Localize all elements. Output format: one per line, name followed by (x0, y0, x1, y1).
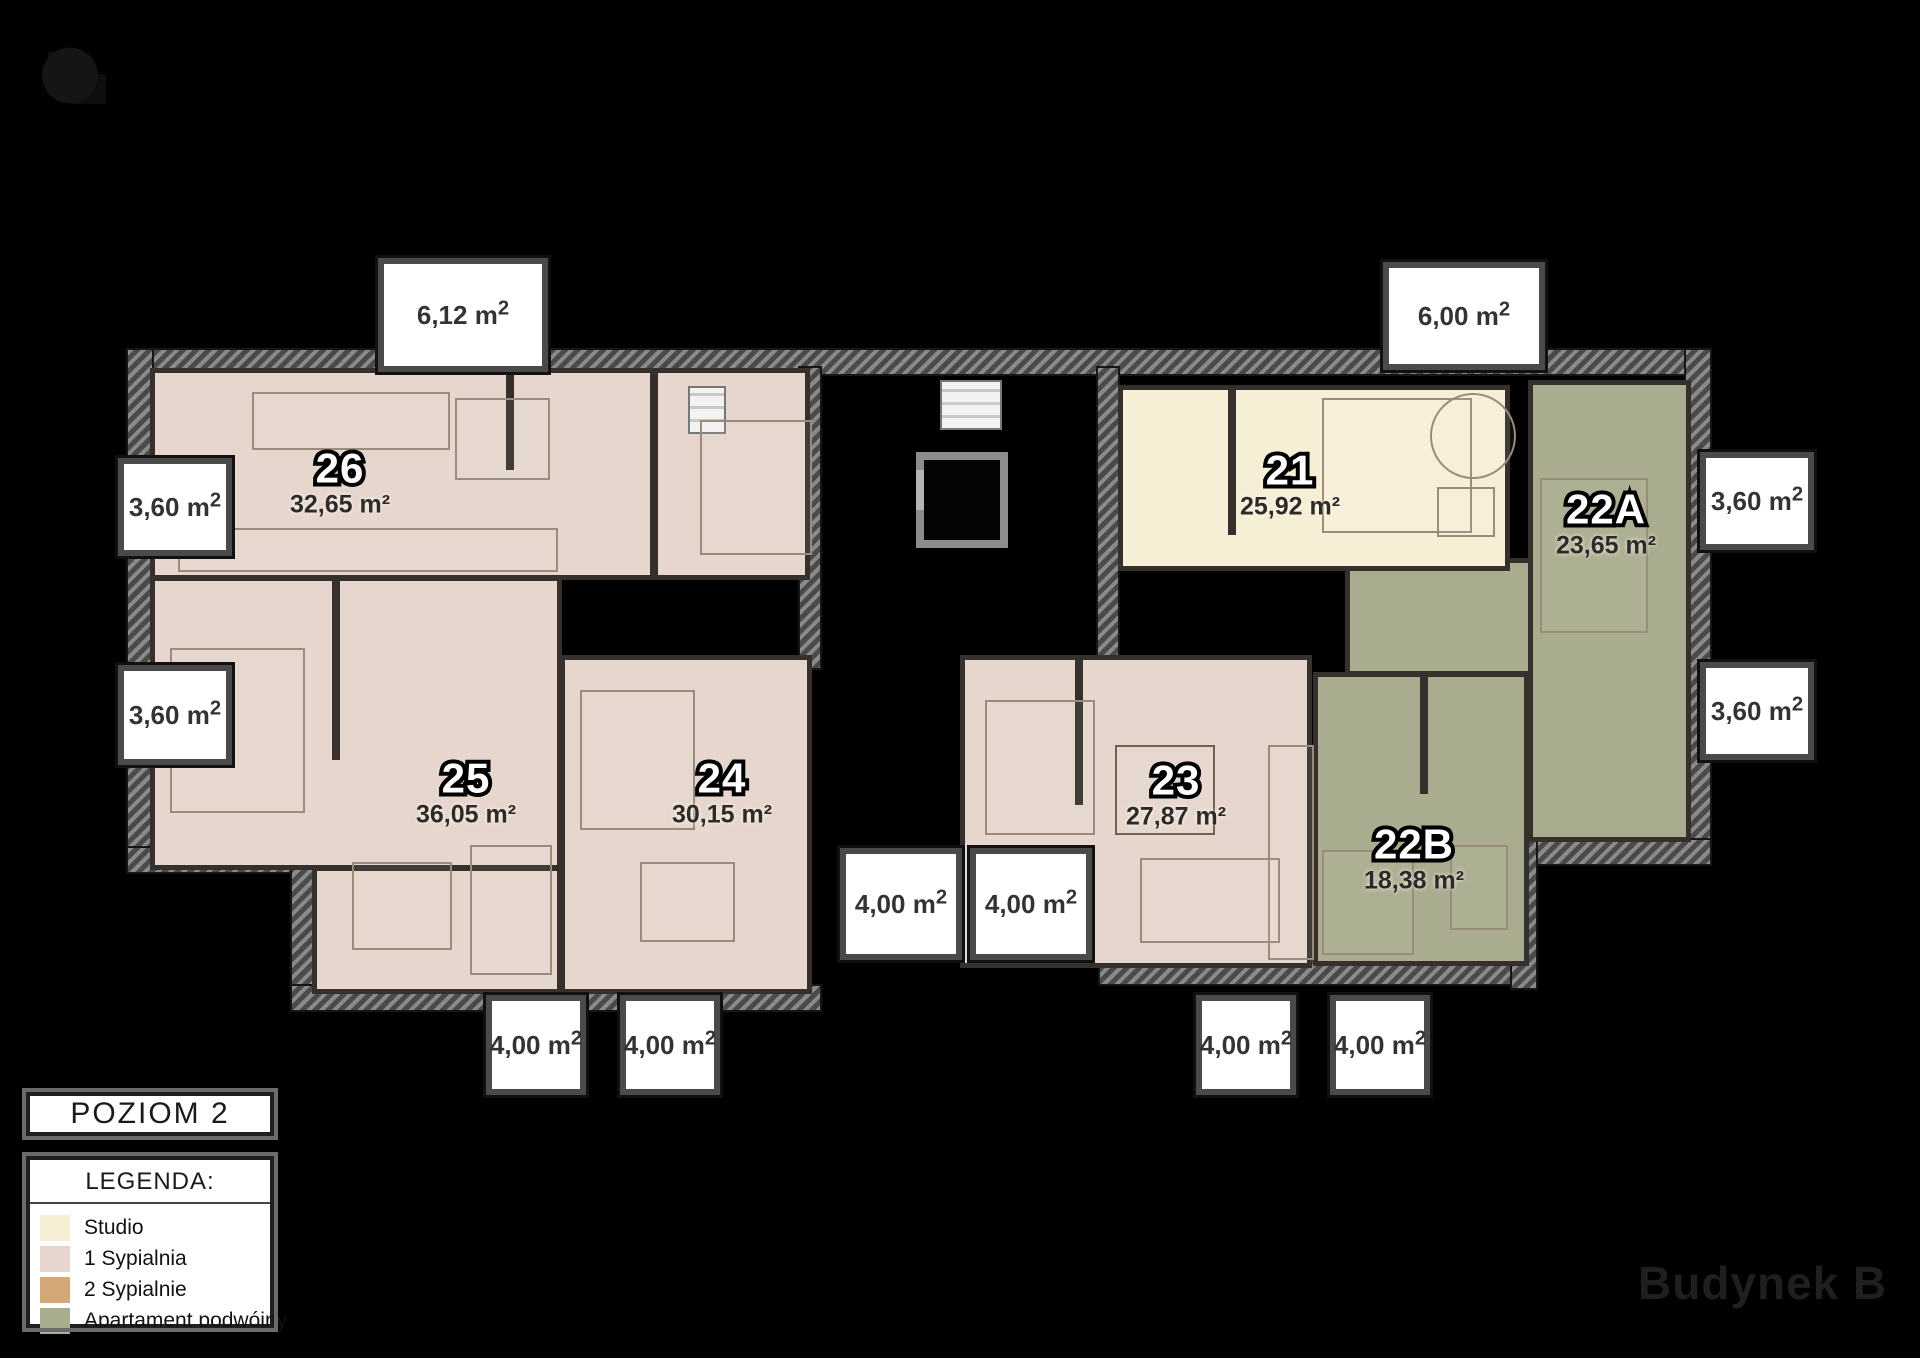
apartment-23-label: 23 27,87 m² (1126, 757, 1226, 832)
balcony: 4,00 m2 (970, 848, 1092, 960)
legend-swatch-studio (40, 1215, 70, 1241)
level-title: POZIOM 2 (70, 1097, 229, 1131)
balcony-area-label: 4,00 m2 (985, 889, 1077, 920)
apartment-area: 32,65 m² (290, 491, 390, 520)
bed (985, 700, 1095, 835)
apartment-number: 24 (672, 755, 772, 803)
building-label: Budynek B (1638, 1256, 1887, 1310)
logo-mark (38, 44, 118, 114)
bed (700, 420, 812, 555)
dining-table (640, 862, 735, 942)
apartment-22a-label: 22A 23,65 m² (1556, 486, 1656, 561)
sofa (252, 392, 450, 450)
balcony-area-label: 6,00 m2 (1418, 301, 1510, 332)
legend-box: LEGENDA: Studio 1 Sypialnia 2 Sypialnie … (26, 1156, 274, 1328)
apartment-25-label: 25 36,05 m² (416, 755, 516, 830)
kitchen-counter (178, 528, 558, 572)
level-title-box: POZIOM 2 (26, 1092, 274, 1136)
balcony-area-label: 4,00 m2 (624, 1030, 716, 1061)
apartment-number: 26 (290, 445, 390, 493)
apartment-number: 21 (1240, 447, 1340, 495)
balcony-area-label: 4,00 m2 (855, 889, 947, 920)
sofa (1140, 858, 1280, 943)
apartment-area: 25,92 m² (1240, 493, 1340, 522)
stairwell-marking (940, 380, 1002, 430)
balcony-area-label: 3,60 m2 (129, 492, 221, 523)
balcony-area-label: 4,00 m2 (1334, 1030, 1426, 1061)
balcony: 6,12 m2 (378, 258, 548, 372)
balcony: 4,00 m2 (486, 995, 586, 1095)
apartment-number: 22B (1364, 821, 1464, 869)
wall-core-right (1098, 368, 1118, 668)
balcony: 3,60 m2 (1700, 662, 1814, 760)
interior-wall (1228, 385, 1236, 535)
interior-wall (332, 578, 340, 760)
balcony-area-label: 3,60 m2 (1711, 486, 1803, 517)
balcony-area-label: 3,60 m2 (1711, 696, 1803, 727)
legend-label: 2 Sypialnie (84, 1278, 187, 1302)
balcony: 4,00 m2 (1330, 995, 1430, 1095)
apartment-area: 18,38 m² (1364, 867, 1464, 896)
apartment-area: 30,15 m² (672, 801, 772, 830)
legend-heading: LEGENDA: (30, 1164, 270, 1204)
balcony: 3,60 m2 (118, 458, 232, 556)
apartment-area: 27,87 m² (1126, 803, 1226, 832)
apartment-22b-label: 22B 18,38 m² (1364, 821, 1464, 896)
balcony-area-label: 4,00 m2 (1200, 1030, 1292, 1061)
balcony: 4,00 m2 (840, 848, 962, 960)
apartment-area: 36,05 m² (416, 801, 516, 830)
balcony-area-label: 3,60 m2 (129, 700, 221, 731)
balcony: 6,00 m2 (1383, 262, 1545, 370)
legend-label: 1 Sypialnia (84, 1247, 187, 1271)
legend-swatch-apartament-podwojny (40, 1308, 70, 1334)
balcony: 4,00 m2 (620, 995, 720, 1095)
legend-item: 2 Sypialnie (40, 1274, 260, 1305)
apartment-area: 23,65 m² (1556, 532, 1656, 561)
apartment-number: 23 (1126, 757, 1226, 805)
balcony: 3,60 m2 (118, 665, 232, 765)
apartment-22b-region (1345, 558, 1545, 676)
sofa (470, 845, 552, 975)
interior-wall (650, 368, 658, 578)
legend-item: 1 Sypialnia (40, 1243, 260, 1274)
legend-item: Studio (40, 1212, 260, 1243)
legend-item: Apartament podwójny (40, 1305, 260, 1336)
legend-swatch-2-sypialnie (40, 1277, 70, 1303)
elevator-shaft (916, 452, 1008, 548)
legend-swatch-1-sypialnia (40, 1246, 70, 1272)
round-table (1430, 393, 1516, 479)
floor-plan-canvas: 6,12 m2 6,00 m2 3,60 m2 3,60 m2 3,60 m2 … (0, 0, 1920, 1358)
wall-left (128, 350, 152, 870)
balcony: 4,00 m2 (1196, 995, 1296, 1095)
dining-table (352, 862, 452, 950)
balcony-area-label: 6,12 m2 (417, 300, 509, 331)
apartment-26-label: 26 32,65 m² (290, 445, 390, 520)
apartment-number: 22A (1556, 486, 1656, 534)
legend-label: Apartament podwójny (84, 1309, 287, 1333)
apartment-24-label: 24 30,15 m² (672, 755, 772, 830)
balcony-area-label: 4,00 m2 (490, 1030, 582, 1061)
legend-label: Studio (84, 1216, 144, 1240)
table (1437, 487, 1495, 537)
legend-items: Studio 1 Sypialnia 2 Sypialnie Apartamen… (30, 1204, 270, 1336)
apartment-21-label: 21 25,92 m² (1240, 447, 1340, 522)
wall-right-step (1526, 840, 1710, 864)
dining-table (455, 398, 550, 480)
apartment-number: 25 (416, 755, 516, 803)
interior-wall (1420, 672, 1428, 794)
balcony: 3,60 m2 (1700, 452, 1814, 550)
